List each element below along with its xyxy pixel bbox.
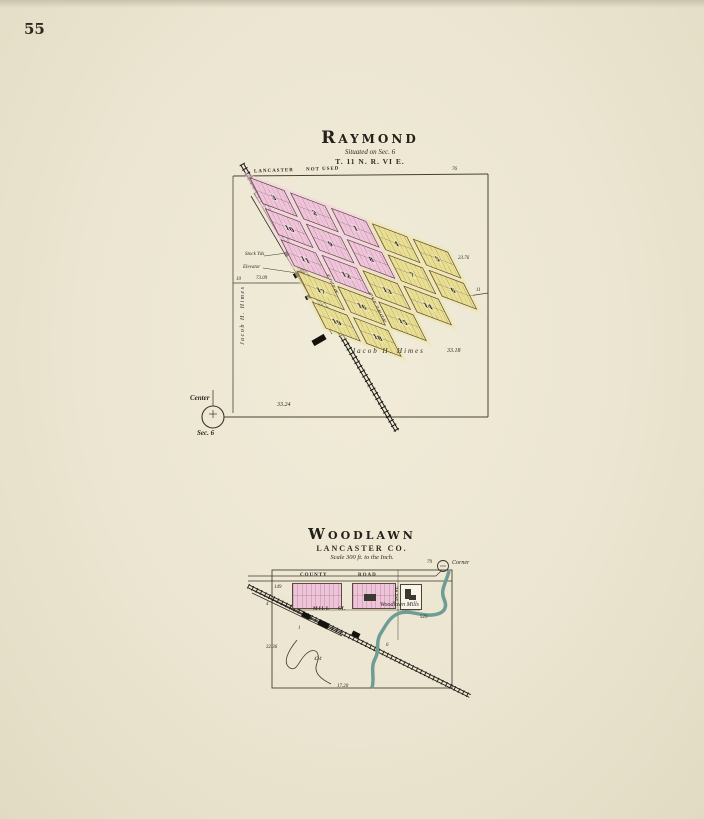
number-32-36: 32.36: [266, 645, 277, 650]
woodlawn-county: LANCASTER CO.: [292, 545, 432, 553]
tick-76: 76: [452, 167, 457, 172]
raymond-center-marker: [202, 406, 224, 428]
mill-street-st: ST.: [338, 607, 345, 612]
number-529: 529: [420, 615, 428, 620]
atlas-page: 55: [0, 0, 704, 819]
number-4: 4: [266, 602, 269, 607]
raymond-township: T. 11 N. R. VI E.: [280, 158, 460, 166]
woodlawn-mills-label: Woodlawn Mills: [380, 602, 419, 608]
woodlawn-title: Woodlawn: [292, 527, 432, 542]
distance-33-24: 33.24: [277, 402, 291, 408]
number-79: 79: [427, 560, 432, 565]
number-17-20: 17.20: [337, 684, 348, 689]
distance-23-76: 23.76: [458, 256, 469, 261]
corner-label: Corner: [452, 560, 469, 566]
number-434: 434: [314, 657, 322, 662]
number-6: 6: [386, 643, 389, 648]
county-road-label-right: ROAD: [358, 573, 377, 578]
distance-73-09: 73.09: [256, 276, 267, 281]
outlot-building-b: [409, 595, 416, 600]
woodlawn-scale: Scale 300 ft. to the Inch.: [292, 555, 432, 562]
center-sec-label: Sec. 6: [197, 430, 214, 437]
tick-10: 10: [236, 277, 241, 282]
number-1: 1: [298, 626, 301, 631]
stock-yards-label: Stock Yds: [245, 252, 264, 257]
raymond-situated: Situated on Sec. 6: [280, 149, 460, 156]
owner-jacob-himes-bottom: Jacob H. Himes: [352, 348, 425, 355]
tick-11: 11: [476, 288, 481, 293]
map-linework: [0, 0, 704, 819]
acreage-33-18: 33.18: [447, 348, 461, 354]
woodlawn-church-building: [364, 594, 376, 601]
woodlawn-county-road: [248, 561, 452, 582]
first-street-label: 1ST ST.: [395, 586, 400, 601]
woodlawn-block-west: [292, 583, 342, 609]
county-road-label-left: COUNTY: [300, 573, 328, 578]
owner-jacob-himes-left: Jacob H. Himes: [240, 286, 246, 346]
woodlawn-creek: [286, 640, 331, 684]
raymond-title: Raymond: [280, 130, 460, 147]
mill-street-label: MILL: [313, 607, 330, 612]
elevator-label: Elevator: [243, 265, 260, 270]
number-149: 149: [274, 585, 282, 590]
center-label: Center: [190, 395, 209, 402]
